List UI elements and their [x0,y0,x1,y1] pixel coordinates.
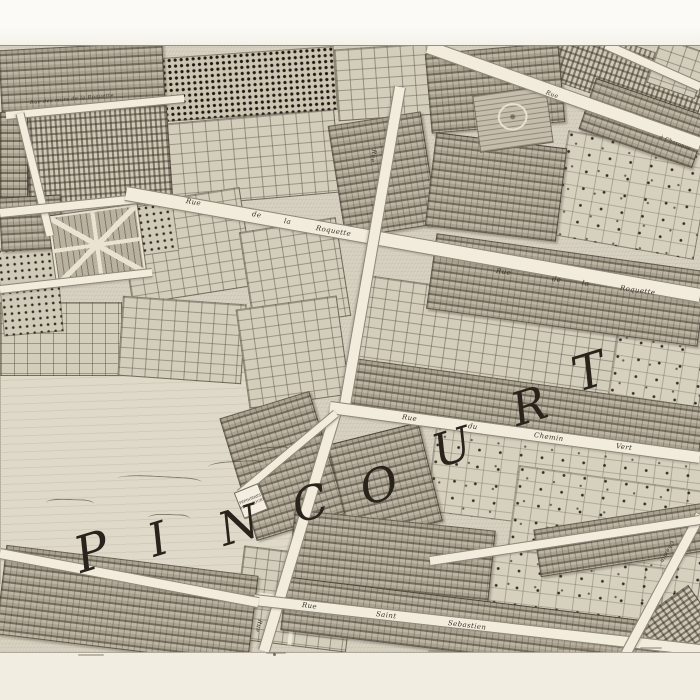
street-label: la [283,217,291,226]
paper-margin-bottom [0,652,700,700]
street-label: du [467,422,478,431]
paper-margin-top [0,0,700,46]
map-block-grid [334,43,437,122]
street-label: de [551,275,561,284]
map-block-orchard-dense [160,46,338,122]
street-label: de [251,210,262,220]
street-label: Rue [302,601,318,611]
map-block-grid [117,296,246,384]
map-canvas: Rue des murs de la RoquetteRuedelaRoquet… [0,0,700,700]
engraved-map-screenshot: Rue des murs de la RoquetteRuedelaRoquet… [0,0,700,700]
map-block-parterre-oval [472,85,553,153]
street-label: la [581,279,589,288]
map-block-grid [236,295,351,408]
map-block-grid [165,109,342,207]
